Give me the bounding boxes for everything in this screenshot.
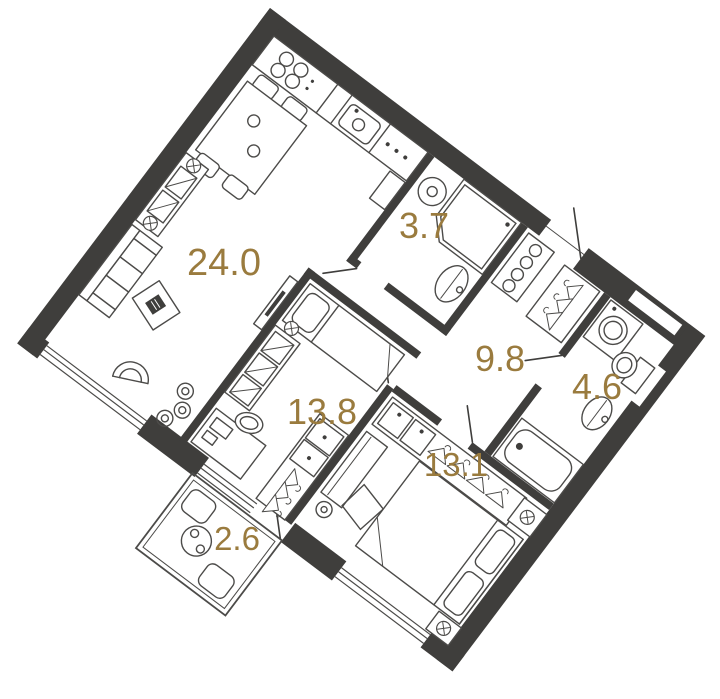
room-label-shower-room: 3.7 <box>399 205 449 246</box>
fridge-icon <box>370 171 406 210</box>
balcony-chair-1 <box>179 487 219 526</box>
balcony-table <box>175 520 217 562</box>
room-label-bedroom-corner: 13.1 <box>424 446 488 483</box>
floor-plan: 24.0 3.7 13.8 9.8 4.6 13.1 2.6 <box>0 0 720 699</box>
room-label-bedroom-middle: 13.8 <box>287 391 357 432</box>
rotated-plan <box>0 0 719 699</box>
window-living <box>40 346 146 430</box>
room-label-living-kitchen: 24.0 <box>187 242 261 284</box>
coffee-table <box>132 281 180 330</box>
room-label-bathroom: 4.6 <box>572 366 622 407</box>
room-label-balcony: 2.6 <box>214 520 260 557</box>
armchair <box>113 359 152 384</box>
desk <box>191 391 279 480</box>
balcony-chair-2 <box>196 561 237 601</box>
room-label-hallway: 9.8 <box>475 338 525 379</box>
floor-plan-page: 24.0 3.7 13.8 9.8 4.6 13.1 2.6 <box>0 0 720 699</box>
mirror-icon <box>313 498 335 520</box>
